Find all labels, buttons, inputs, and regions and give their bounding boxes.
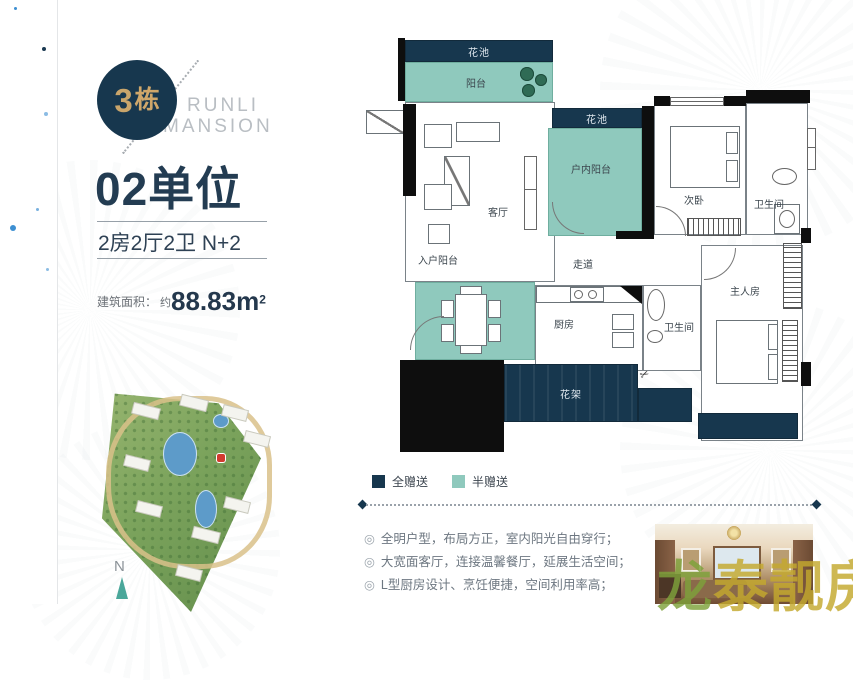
flower-bed-bottom xyxy=(698,413,798,439)
sink-icon xyxy=(612,332,634,348)
site-plan-pond xyxy=(163,432,197,476)
window xyxy=(670,97,724,106)
rule-bottom xyxy=(97,258,267,259)
watermark-char: 龙 xyxy=(657,556,713,618)
room-flower-bed-top: 花池 xyxy=(405,40,553,62)
wall xyxy=(801,228,811,243)
burner-icon xyxy=(588,290,597,299)
brand-name-line1: RUNLI xyxy=(187,95,259,117)
legend-label: 半赠送 xyxy=(472,473,508,490)
legend-label: 全赠送 xyxy=(392,473,428,490)
watermark-chars: 泰靓房 xyxy=(713,556,853,618)
room-label: 卫生间 xyxy=(664,319,694,334)
armchair-icon xyxy=(424,184,452,210)
sink-icon xyxy=(612,314,634,330)
toilet-icon xyxy=(647,330,663,343)
area-exponent: 2 xyxy=(259,293,266,307)
unit-title: 02单位 xyxy=(95,153,242,219)
room-label: 次卧 xyxy=(684,192,704,207)
bathtub-icon xyxy=(647,289,665,321)
room-flower-rack: 花架 xyxy=(504,364,638,422)
chair-icon xyxy=(488,324,501,342)
page-left-margin xyxy=(0,0,58,604)
feature-text: 全明户型，布局方正，室内阳光自由穿行； xyxy=(381,532,619,546)
wall xyxy=(398,38,405,101)
divider-diamond-right xyxy=(812,500,822,510)
pillow-icon xyxy=(726,132,738,154)
legend-swatch-half xyxy=(452,475,465,488)
wall xyxy=(801,362,811,386)
legend-item-full-gift: 全赠送 xyxy=(372,473,428,490)
wall xyxy=(654,96,670,106)
pillow-icon xyxy=(768,324,778,350)
sofa-icon xyxy=(456,122,500,142)
dotted-divider xyxy=(366,504,812,506)
building-area: 建筑面积：约88.83m2 xyxy=(97,286,266,317)
room-label: 阳台 xyxy=(466,75,486,90)
plant-icon xyxy=(522,84,535,97)
speckle-dot xyxy=(46,268,49,271)
speckle-dot xyxy=(14,7,17,10)
wardrobe-hatch xyxy=(687,218,741,236)
legend-item-half-gift: 半赠送 xyxy=(452,473,508,490)
plant-icon xyxy=(520,67,534,81)
room-label: 主人房 xyxy=(730,283,760,298)
room-label: 入户阳台 xyxy=(418,252,458,267)
wall xyxy=(642,106,654,236)
watermark-text: 龙泰靓房 xyxy=(657,542,853,622)
ac-ladder-hatch xyxy=(783,243,802,309)
window xyxy=(807,128,816,170)
compass-label: N xyxy=(114,558,125,575)
feature-text: 大宽面客厅，连接温馨餐厅，延展生活空间； xyxy=(381,555,631,569)
area-value: 88.83m xyxy=(171,286,259,316)
dining-table-icon xyxy=(455,294,487,346)
washbasin-bowl-icon xyxy=(779,210,795,228)
wall xyxy=(724,96,746,106)
wall xyxy=(746,90,810,103)
floor-plan: 花池 阳台 客厅 花池 户内阳台 次卧 卫生间 走道 入户阳台 xyxy=(358,28,836,473)
room-label: 花池 xyxy=(586,111,608,126)
flower-rack-segment xyxy=(638,388,692,422)
plan-legend: 全赠送 半赠送 xyxy=(372,473,532,490)
burner-icon xyxy=(574,290,583,299)
speckle-dot xyxy=(36,208,39,211)
site-plan-road xyxy=(106,396,271,569)
building-badge: 3 栋 xyxy=(97,60,177,140)
pillow-icon xyxy=(726,160,738,182)
pillow-icon xyxy=(768,354,778,380)
bullet-icon: ◎ xyxy=(364,555,375,569)
room-label: 花池 xyxy=(468,44,490,59)
wardrobe-hatch xyxy=(782,320,798,382)
speckle-dot xyxy=(10,225,16,231)
wall xyxy=(403,104,416,196)
room-label: 厨房 xyxy=(554,316,574,331)
building-number: 3 xyxy=(114,84,132,117)
area-label: 建筑面积： xyxy=(97,295,157,309)
compass-needle-icon xyxy=(116,577,128,599)
feature-list: ◎全明户型，布局方正，室内阳光自由穿行； ◎大宽面客厅，连接温馨餐厅，延展生活空… xyxy=(364,528,631,597)
sofa-icon xyxy=(424,124,452,148)
toilet-icon xyxy=(772,168,797,185)
wall xyxy=(616,231,654,239)
chair-icon xyxy=(460,286,482,295)
flyer-page: { "brand": { "building_badge_num": "3", … xyxy=(0,0,853,604)
feature-item: ◎L型厨房设计、烹饪便捷，空间利用率高； xyxy=(364,574,631,597)
chandelier-icon xyxy=(727,526,741,540)
ac-unit-icon xyxy=(366,110,404,134)
highlighted-building-marker xyxy=(217,454,225,462)
brand-name-line2: MANSION xyxy=(163,116,273,138)
chair-icon xyxy=(488,300,501,318)
site-plan-pond xyxy=(195,490,217,528)
room-flower-bed-right: 花池 xyxy=(552,108,642,128)
site-plan-aerial xyxy=(85,372,297,612)
bullet-icon: ◎ xyxy=(364,578,375,592)
room-label: 户内阳台 xyxy=(571,161,611,176)
room-label: 走道 xyxy=(573,256,593,271)
room-label: 卫生间 xyxy=(754,196,784,211)
building-char: 栋 xyxy=(135,88,160,113)
speckle-dot xyxy=(42,47,46,51)
unit-layout-spec: 2房2厅2卫 N+2 xyxy=(98,227,241,257)
bullet-icon: ◎ xyxy=(364,532,375,546)
rule-top xyxy=(97,221,267,222)
elevator-shaft xyxy=(400,360,504,452)
feature-item: ◎全明户型，布局方正，室内阳光自由穿行； xyxy=(364,528,631,551)
speckle-dot xyxy=(44,112,48,116)
area-approx: 约 xyxy=(160,297,171,309)
room-label: 客厅 xyxy=(488,204,508,219)
window xyxy=(524,156,537,230)
feature-item: ◎大宽面客厅，连接温馨餐厅，延展生活空间； xyxy=(364,551,631,574)
room-label: 花架 xyxy=(560,386,582,401)
plant-icon xyxy=(535,74,547,86)
feature-text: L型厨房设计、烹饪便捷，空间利用率高； xyxy=(381,578,613,592)
chair-icon xyxy=(460,345,482,354)
legend-swatch-full xyxy=(372,475,385,488)
side-table-icon xyxy=(428,224,450,244)
